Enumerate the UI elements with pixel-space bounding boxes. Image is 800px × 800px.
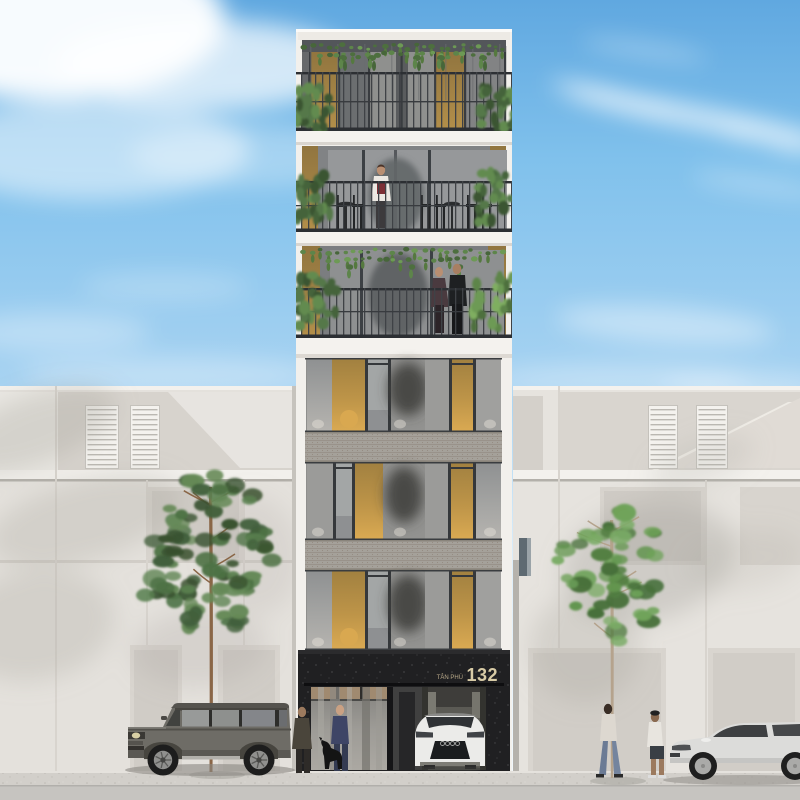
svg-text:132: 132 [466,665,498,685]
svg-text:TÂN PHÚ: TÂN PHÚ [437,674,463,681]
